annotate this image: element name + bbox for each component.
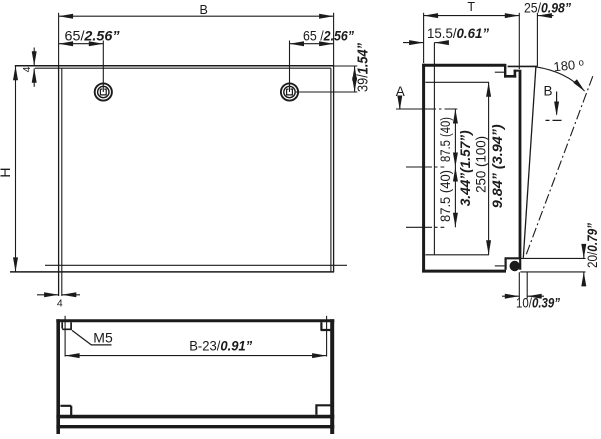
svg-text:9.84” (3.94”): 9.84” (3.94”) [489,124,505,208]
svg-text:39/1.54”: 39/1.54” [355,42,371,92]
svg-text:B: B [543,84,552,99]
svg-text:10/0.39”: 10/0.39” [516,295,560,311]
svg-text:65 /2.56”: 65 /2.56” [303,28,354,44]
svg-text:25/0.98”: 25/0.98” [524,0,571,15]
svg-text:4: 4 [57,298,63,310]
svg-text:4: 4 [21,66,33,72]
svg-text:65/2.56”: 65/2.56” [65,27,120,43]
svg-text:87.5 (40): 87.5 (40) [437,170,453,222]
svg-text:M5: M5 [93,330,113,346]
svg-text:H: H [0,167,13,177]
svg-text:3.44”(1.57”): 3.44”(1.57”) [457,130,473,206]
svg-text:87.5 (40): 87.5 (40) [437,117,453,162]
svg-text:B: B [200,3,208,17]
svg-text:20/0.79”: 20/0.79” [584,223,600,268]
svg-text:T: T [467,0,475,14]
svg-text:B-23/0.91”: B-23/0.91” [189,337,252,353]
svg-text:250 (100): 250 (100) [472,136,488,193]
svg-text:15.5/0.61”: 15.5/0.61” [427,25,489,41]
